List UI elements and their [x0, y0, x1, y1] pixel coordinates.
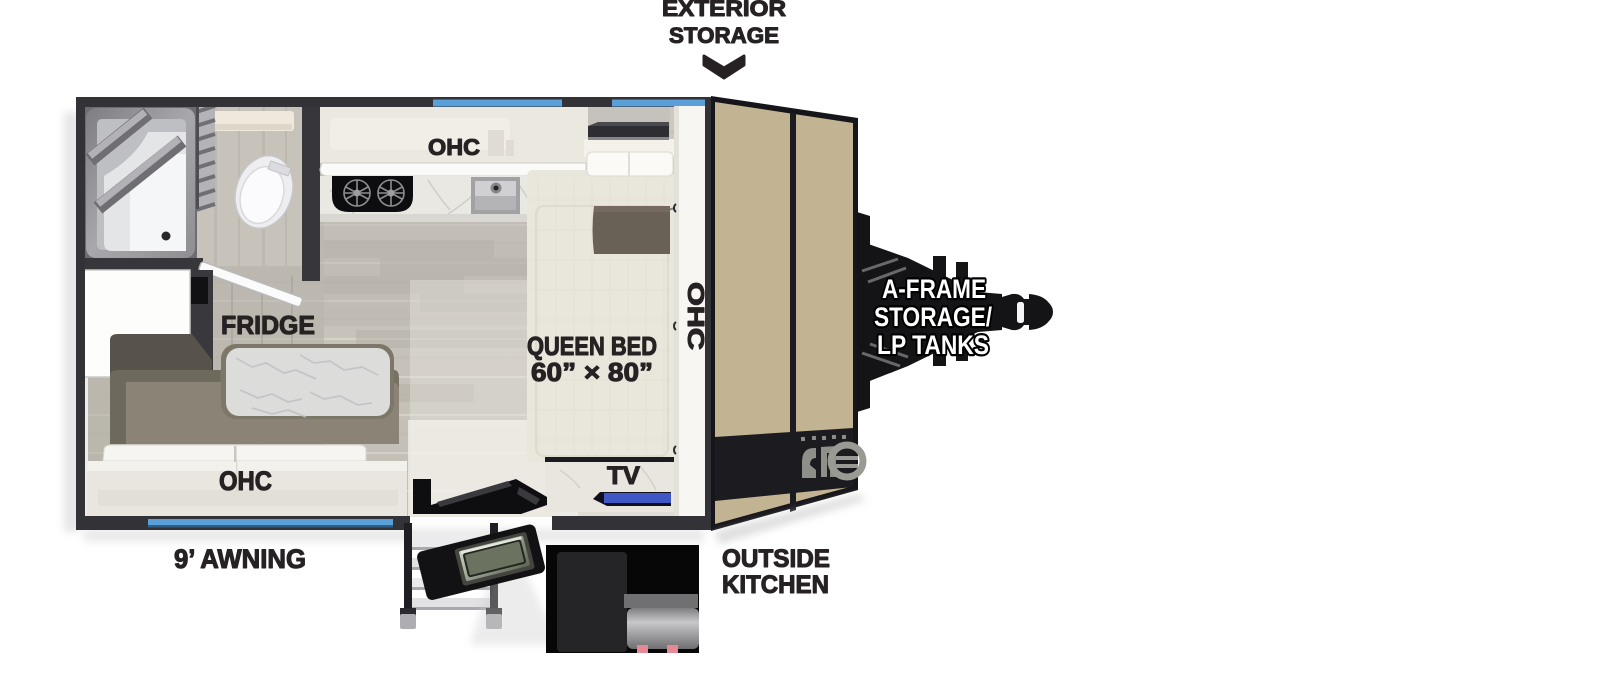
svg-text:9’ AWNING: 9’ AWNING	[174, 544, 306, 574]
svg-text:KITCHEN: KITCHEN	[722, 571, 829, 599]
svg-text:OHC: OHC	[428, 134, 480, 160]
svg-text:OUTSIDE: OUTSIDE	[722, 545, 830, 573]
svg-text:FRIDGE: FRIDGE	[221, 310, 315, 340]
svg-text:EXTERIOR: EXTERIOR	[662, 0, 786, 21]
svg-text:STORAGE: STORAGE	[669, 23, 779, 48]
svg-text:STORAGE/: STORAGE/	[874, 302, 992, 332]
svg-text:LP TANKS: LP TANKS	[877, 330, 989, 360]
svg-text:OHC: OHC	[219, 466, 272, 496]
svg-text:60” × 80”: 60” × 80”	[531, 357, 653, 387]
svg-text:TV: TV	[607, 462, 640, 490]
svg-text:A-FRAME: A-FRAME	[882, 274, 986, 304]
